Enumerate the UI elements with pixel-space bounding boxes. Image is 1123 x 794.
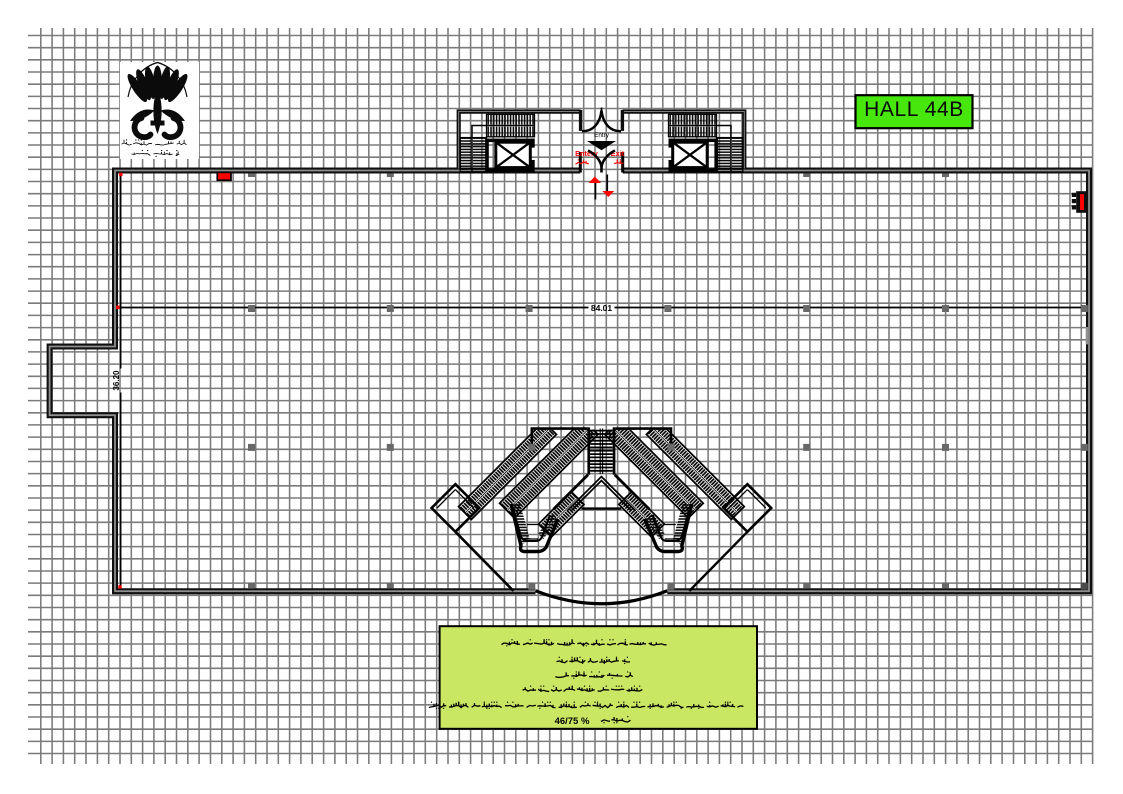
- svg-text:46/75 %: 46/75 %: [555, 716, 590, 727]
- svg-text:84.01: 84.01: [591, 303, 613, 313]
- svg-text:HALL 44B: HALL 44B: [864, 98, 964, 121]
- svg-text:Entry: Entry: [594, 132, 610, 139]
- svg-text:36.20: 36.20: [112, 370, 121, 391]
